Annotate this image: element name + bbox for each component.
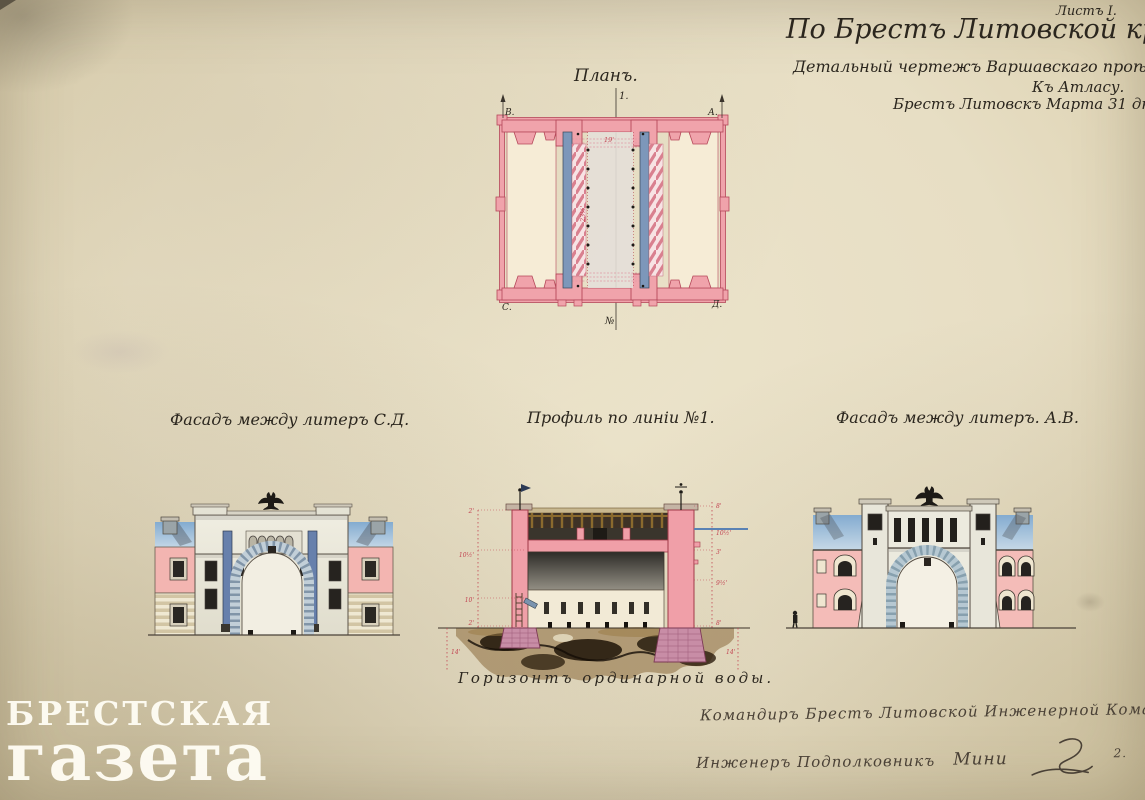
profile-drawing: 2' 10½' 10' 2' 14' 8' 10½' 3' 9½' 8' 14' (438, 480, 750, 698)
left-facade-arch (235, 546, 309, 635)
date-line: Брестъ Литовскъ Марта 31 дня 1861 года. (893, 95, 1145, 113)
drawing-subtitle: Детальный чертежъ Варшавскаго проѣзда. (793, 57, 1145, 76)
flag-posts (518, 483, 687, 510)
plan-corner-top-left: В. (504, 108, 515, 118)
plan-corner-bottom-left: С. (502, 303, 512, 313)
left-facade-title: Фасадъ между литеръ С.Д. (170, 410, 409, 429)
water-level-label: Горизонтъ ординарной воды. (458, 669, 774, 687)
plan-corner-top-right: А. (707, 108, 718, 118)
profile-title: Профиль по линіи №1. (527, 408, 715, 427)
watermark: БРЕСТСКАЯ газета (6, 697, 274, 790)
watermark-line2: газета (6, 724, 274, 790)
signature-paraph (1025, 736, 1095, 783)
section-mark-bottom: № (604, 316, 614, 327)
drawing-sheet: Листъ I. По Брестъ Литовской крѣпости. Д… (0, 0, 1145, 800)
right-facade-drawing (786, 480, 1076, 646)
profile-dim: 3' (716, 549, 722, 556)
profile-dim: 10½' (716, 530, 731, 537)
profile-dim: 9½' (716, 580, 728, 587)
profile-dim: 14' (451, 649, 461, 656)
left-facade-drawing (148, 486, 400, 644)
right-facade-arch (891, 550, 963, 628)
section-mark-top: 1. (619, 91, 629, 102)
profile-dim: 10½' (459, 552, 474, 559)
signature-name: Мини (953, 749, 1008, 769)
profile-roof (526, 508, 670, 552)
eagle-finial (258, 492, 284, 510)
profile-dim: 8' (716, 620, 722, 627)
plan-dim-length: 23½' (579, 205, 587, 223)
profile-dim: 8' (716, 503, 722, 510)
signature-line1: Командиръ Брестъ Литовской Инженерной Ко… (700, 700, 1145, 725)
plan-dim-width: 19' (604, 136, 614, 144)
signature-rank: Инженеръ Подполковникъ (696, 752, 935, 772)
pencil-smudge (70, 330, 170, 374)
plan-drawing: 1. № (488, 82, 738, 334)
signature-suffix: 2. (1114, 746, 1128, 760)
signature-line2: Инженеръ Подполковникъ Мини 2. (696, 736, 1127, 772)
profile-interior (516, 552, 664, 628)
profile-dim: 2' (468, 620, 475, 627)
scale-figure (793, 611, 798, 628)
right-facade-title: Фасадъ между литеръ. А.В. (836, 408, 1079, 427)
paper-stain (1075, 592, 1105, 612)
eagle-finial (915, 486, 944, 506)
drawing-title: По Брестъ Литовской крѣпости. (786, 14, 1145, 45)
profile-dim: 2' (468, 508, 475, 515)
plan-corner-bottom-right: Д. (711, 300, 722, 310)
atlas-note: Къ Атласу. (1032, 78, 1124, 96)
profile-dim: 14' (726, 649, 736, 656)
profile-dim: 10' (465, 597, 475, 604)
scan-corner-artifact (0, 0, 16, 10)
